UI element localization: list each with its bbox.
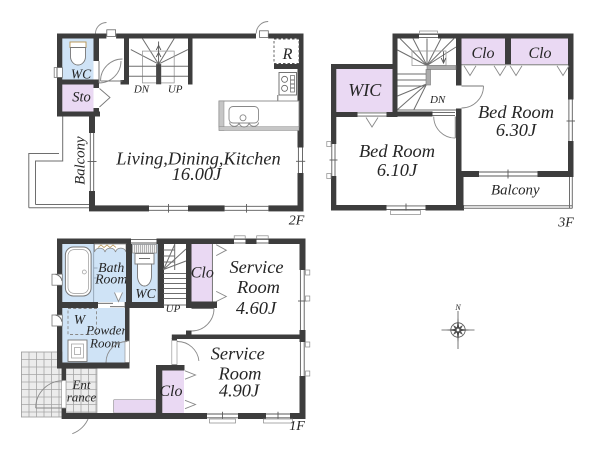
svg-text:WC: WC	[71, 66, 92, 81]
svg-text:Clo: Clo	[471, 45, 494, 62]
svg-text:DN: DN	[429, 94, 446, 106]
svg-text:1F: 1F	[289, 419, 305, 434]
svg-text:WIC: WIC	[348, 80, 382, 100]
svg-text:4.90J: 4.90J	[219, 381, 260, 401]
svg-text:Sto: Sto	[72, 90, 91, 106]
svg-text:Clo: Clo	[528, 45, 551, 62]
svg-text:R: R	[282, 46, 293, 63]
svg-text:6.30J: 6.30J	[496, 120, 537, 140]
svg-text:WC: WC	[135, 286, 156, 301]
svg-text:DN: DN	[133, 84, 150, 96]
svg-text:Bed Room: Bed Room	[359, 141, 435, 161]
svg-text:2F: 2F	[289, 213, 305, 228]
svg-text:6.10J: 6.10J	[377, 160, 418, 180]
svg-text:Room: Room	[94, 272, 127, 287]
svg-text:Room: Room	[236, 277, 280, 297]
svg-text:4.60J: 4.60J	[236, 298, 277, 318]
svg-text:16.00J: 16.00J	[172, 164, 222, 184]
svg-text:Clo: Clo	[159, 383, 182, 400]
svg-text:Service: Service	[211, 344, 265, 364]
svg-text:N: N	[454, 303, 461, 312]
svg-text:rance: rance	[67, 390, 97, 405]
svg-text:Balcony: Balcony	[491, 183, 540, 199]
svg-text:Room: Room	[89, 336, 120, 351]
svg-text:Service: Service	[229, 257, 283, 277]
svg-text:UP: UP	[166, 303, 181, 315]
svg-text:3F: 3F	[557, 216, 574, 231]
svg-text:Balcony: Balcony	[73, 136, 89, 185]
svg-text:W: W	[74, 312, 87, 327]
svg-text:Clo: Clo	[191, 265, 214, 282]
svg-text:Bed Room: Bed Room	[478, 102, 554, 122]
svg-text:UP: UP	[168, 84, 183, 96]
